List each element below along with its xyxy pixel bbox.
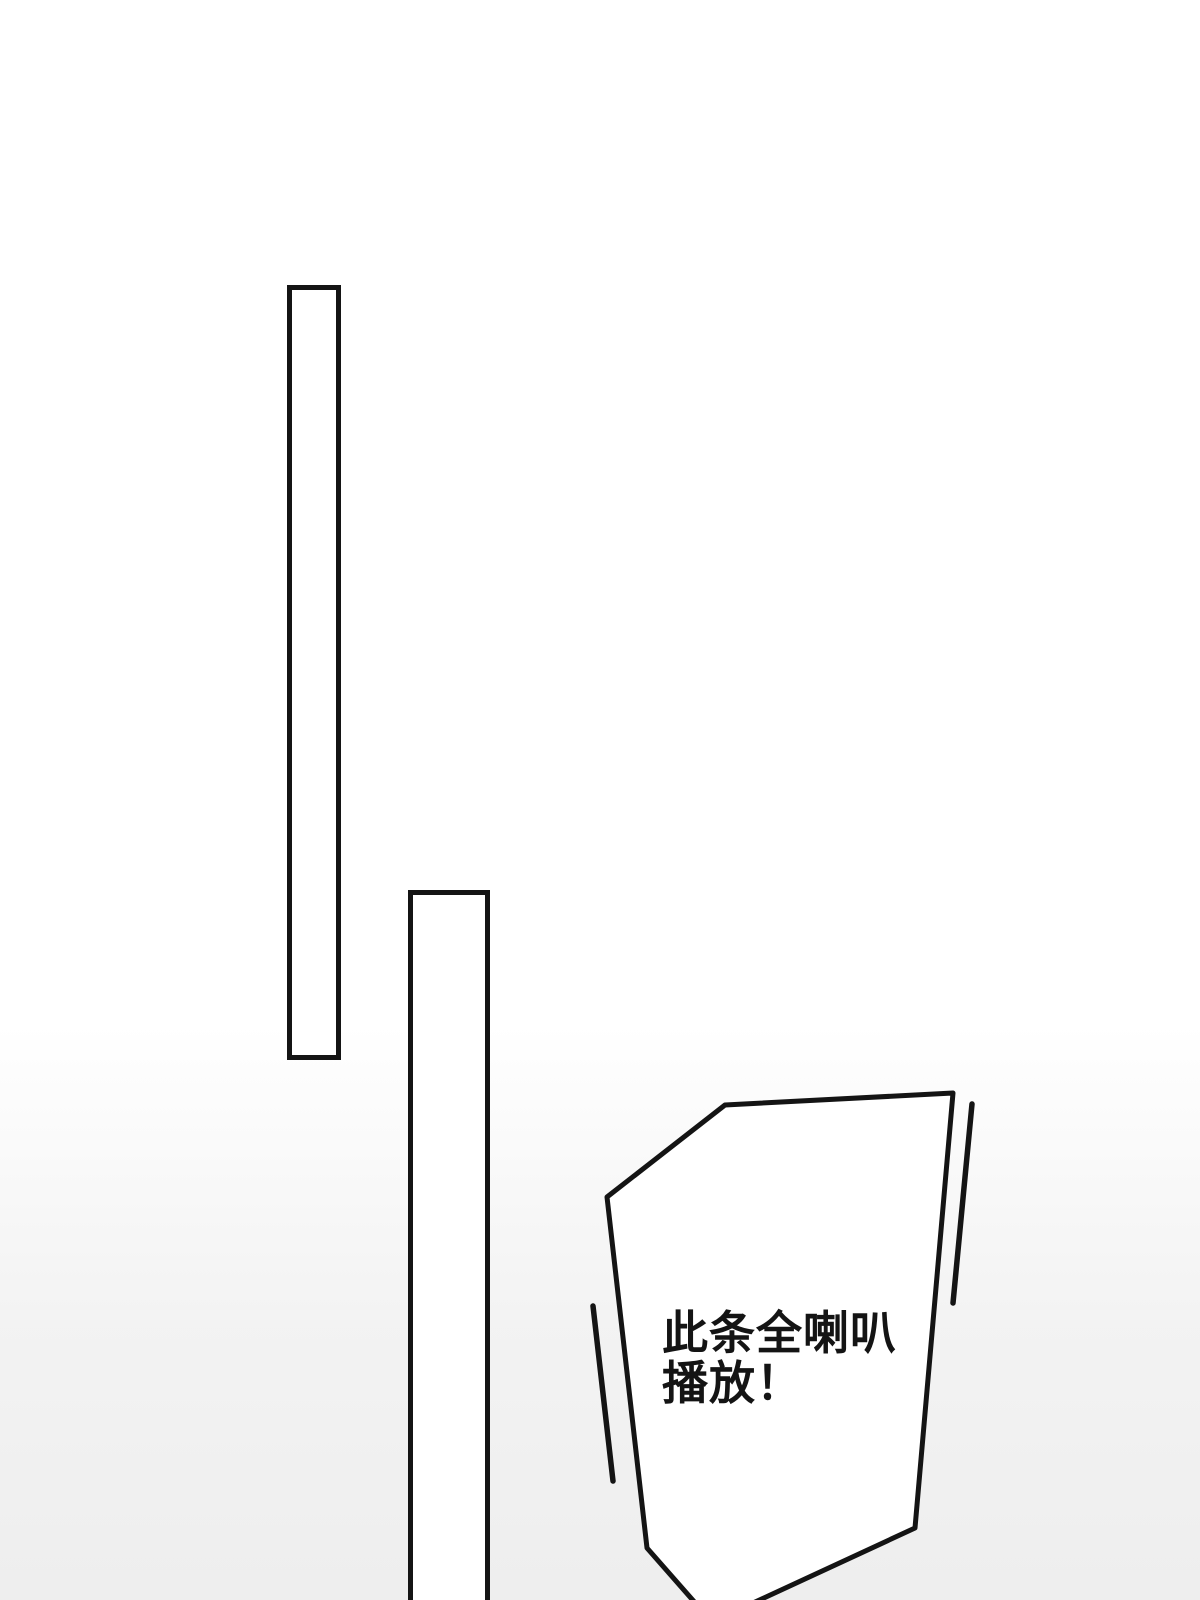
speech-bubble-layer: [0, 0, 1200, 1600]
speed-line-right: [953, 1104, 972, 1303]
manga-page: 此条全喇叭 播放！: [0, 0, 1200, 1600]
speech-bubble-text: 此条全喇叭 播放！: [662, 1308, 897, 1408]
bubble-text-line-2: 播放！: [662, 1358, 897, 1408]
speed-line-left: [593, 1306, 613, 1481]
bubble-text-line-1: 此条全喇叭: [662, 1308, 897, 1358]
